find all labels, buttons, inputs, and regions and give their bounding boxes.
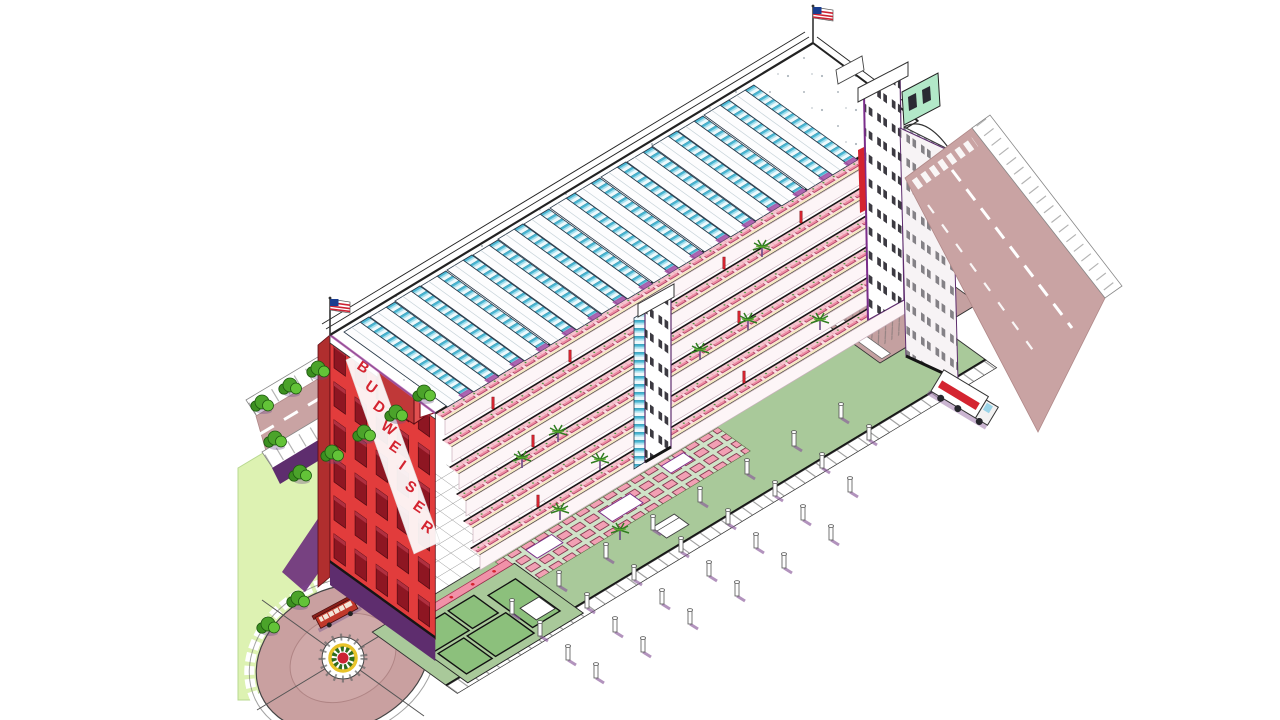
axonometric-drawing: B U D W E I S E R bbox=[0, 0, 1280, 720]
illustration-canvas: B U D W E I S E R bbox=[0, 0, 1280, 720]
core-glazing bbox=[634, 311, 645, 469]
tower-windows bbox=[864, 74, 904, 320]
fountain bbox=[322, 637, 364, 679]
center-elevator-core bbox=[634, 284, 674, 469]
fountain-center bbox=[338, 653, 349, 664]
